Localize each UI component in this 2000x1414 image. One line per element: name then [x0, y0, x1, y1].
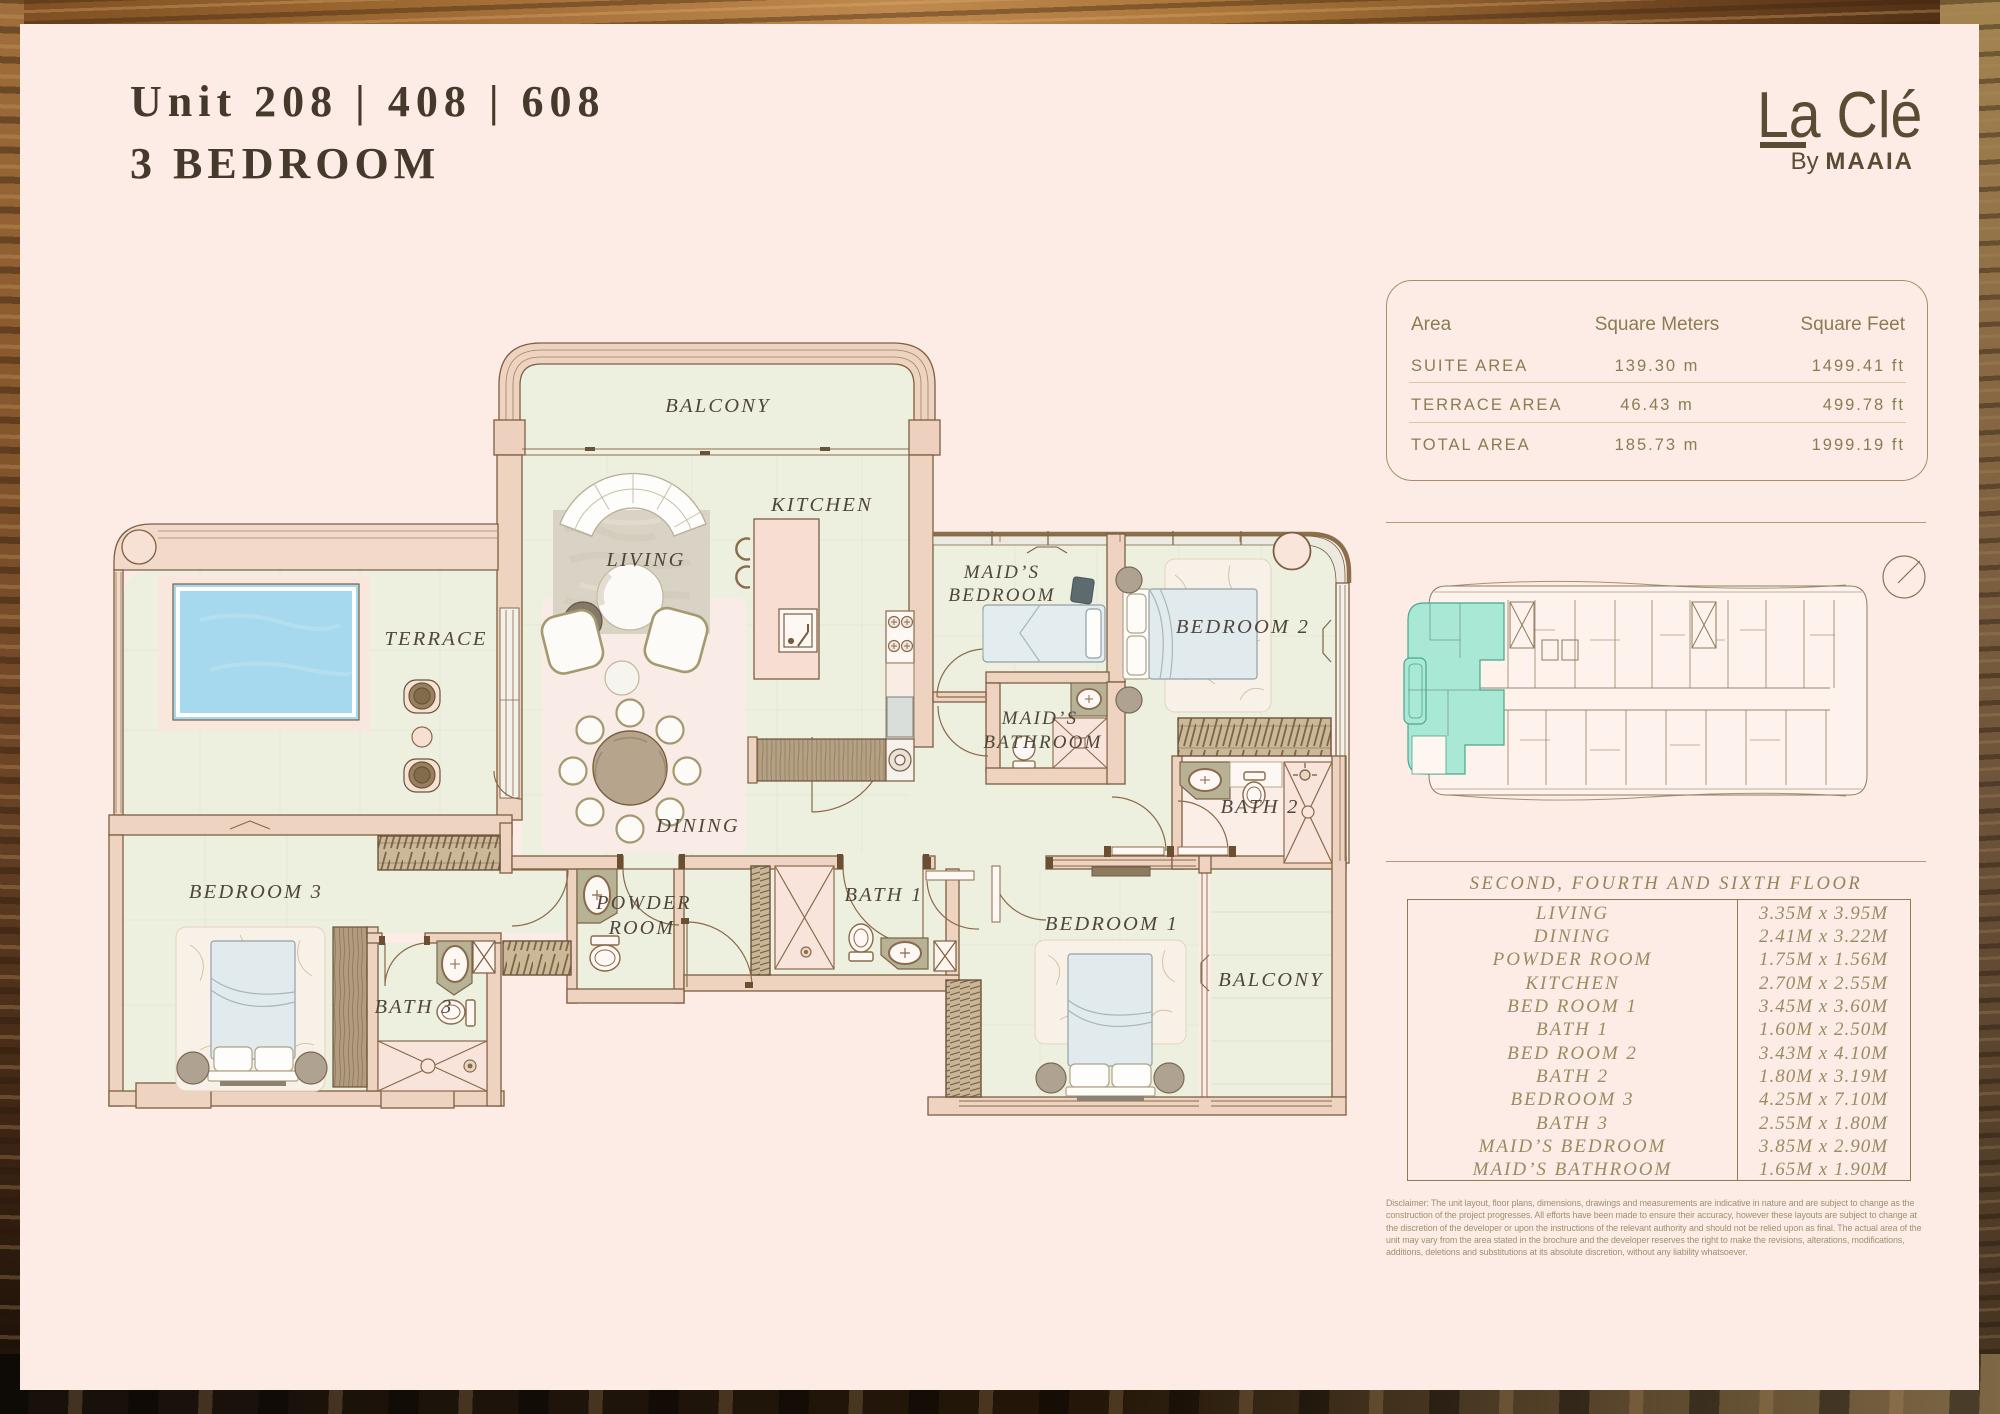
svg-text:MAID’S: MAID’S: [1001, 708, 1079, 729]
svg-text:BALCONY: BALCONY: [665, 395, 771, 417]
svg-text:BATH 3: BATH 3: [374, 996, 453, 1018]
svg-text:TERRACE: TERRACE: [384, 628, 487, 650]
svg-text:LIVING: LIVING: [605, 549, 685, 571]
svg-text:BATH 1: BATH 1: [844, 884, 923, 906]
svg-text:ROOM: ROOM: [608, 917, 676, 939]
svg-text:BATH 2: BATH 2: [1220, 796, 1299, 818]
svg-text:BALCONY: BALCONY: [1218, 969, 1324, 991]
svg-text:BEDROOM 1: BEDROOM 1: [1045, 913, 1179, 935]
svg-text:POWDER: POWDER: [595, 892, 691, 914]
svg-text:BEDROOM: BEDROOM: [948, 585, 1055, 606]
svg-text:BATHROOM: BATHROOM: [983, 732, 1102, 753]
svg-text:KITCHEN: KITCHEN: [770, 494, 873, 516]
svg-text:BEDROOM 2: BEDROOM 2: [1176, 616, 1310, 638]
svg-text:DINING: DINING: [655, 815, 740, 837]
svg-text:BEDROOM 3: BEDROOM 3: [189, 881, 323, 903]
svg-text:MAID’S: MAID’S: [963, 562, 1041, 583]
